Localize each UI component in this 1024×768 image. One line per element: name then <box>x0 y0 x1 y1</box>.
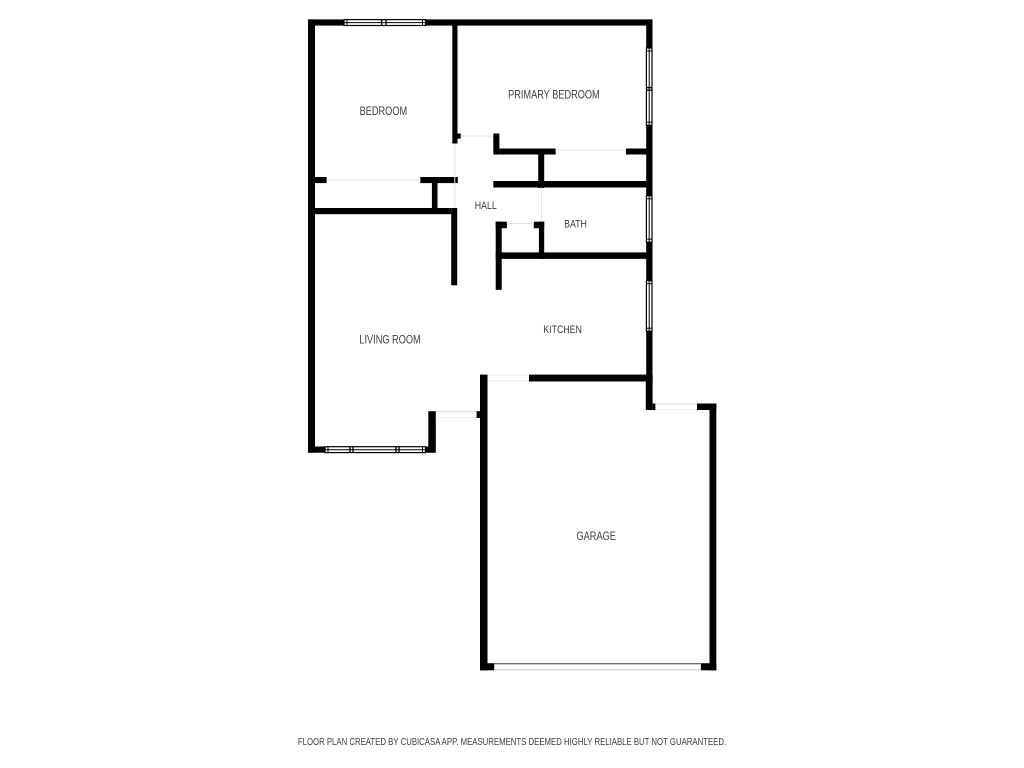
svg-text:BATH: BATH <box>564 219 587 231</box>
svg-text:KITCHEN: KITCHEN <box>543 324 582 336</box>
svg-text:FLOOR PLAN CREATED BY CUBICASA: FLOOR PLAN CREATED BY CUBICASA APP. MEAS… <box>298 736 726 747</box>
svg-text:GARAGE: GARAGE <box>577 531 616 543</box>
svg-text:HALL: HALL <box>475 200 497 212</box>
svg-text:LIVING ROOM: LIVING ROOM <box>359 335 420 347</box>
svg-text:BEDROOM: BEDROOM <box>360 106 408 118</box>
svg-text:PRIMARY BEDROOM: PRIMARY BEDROOM <box>508 90 600 102</box>
